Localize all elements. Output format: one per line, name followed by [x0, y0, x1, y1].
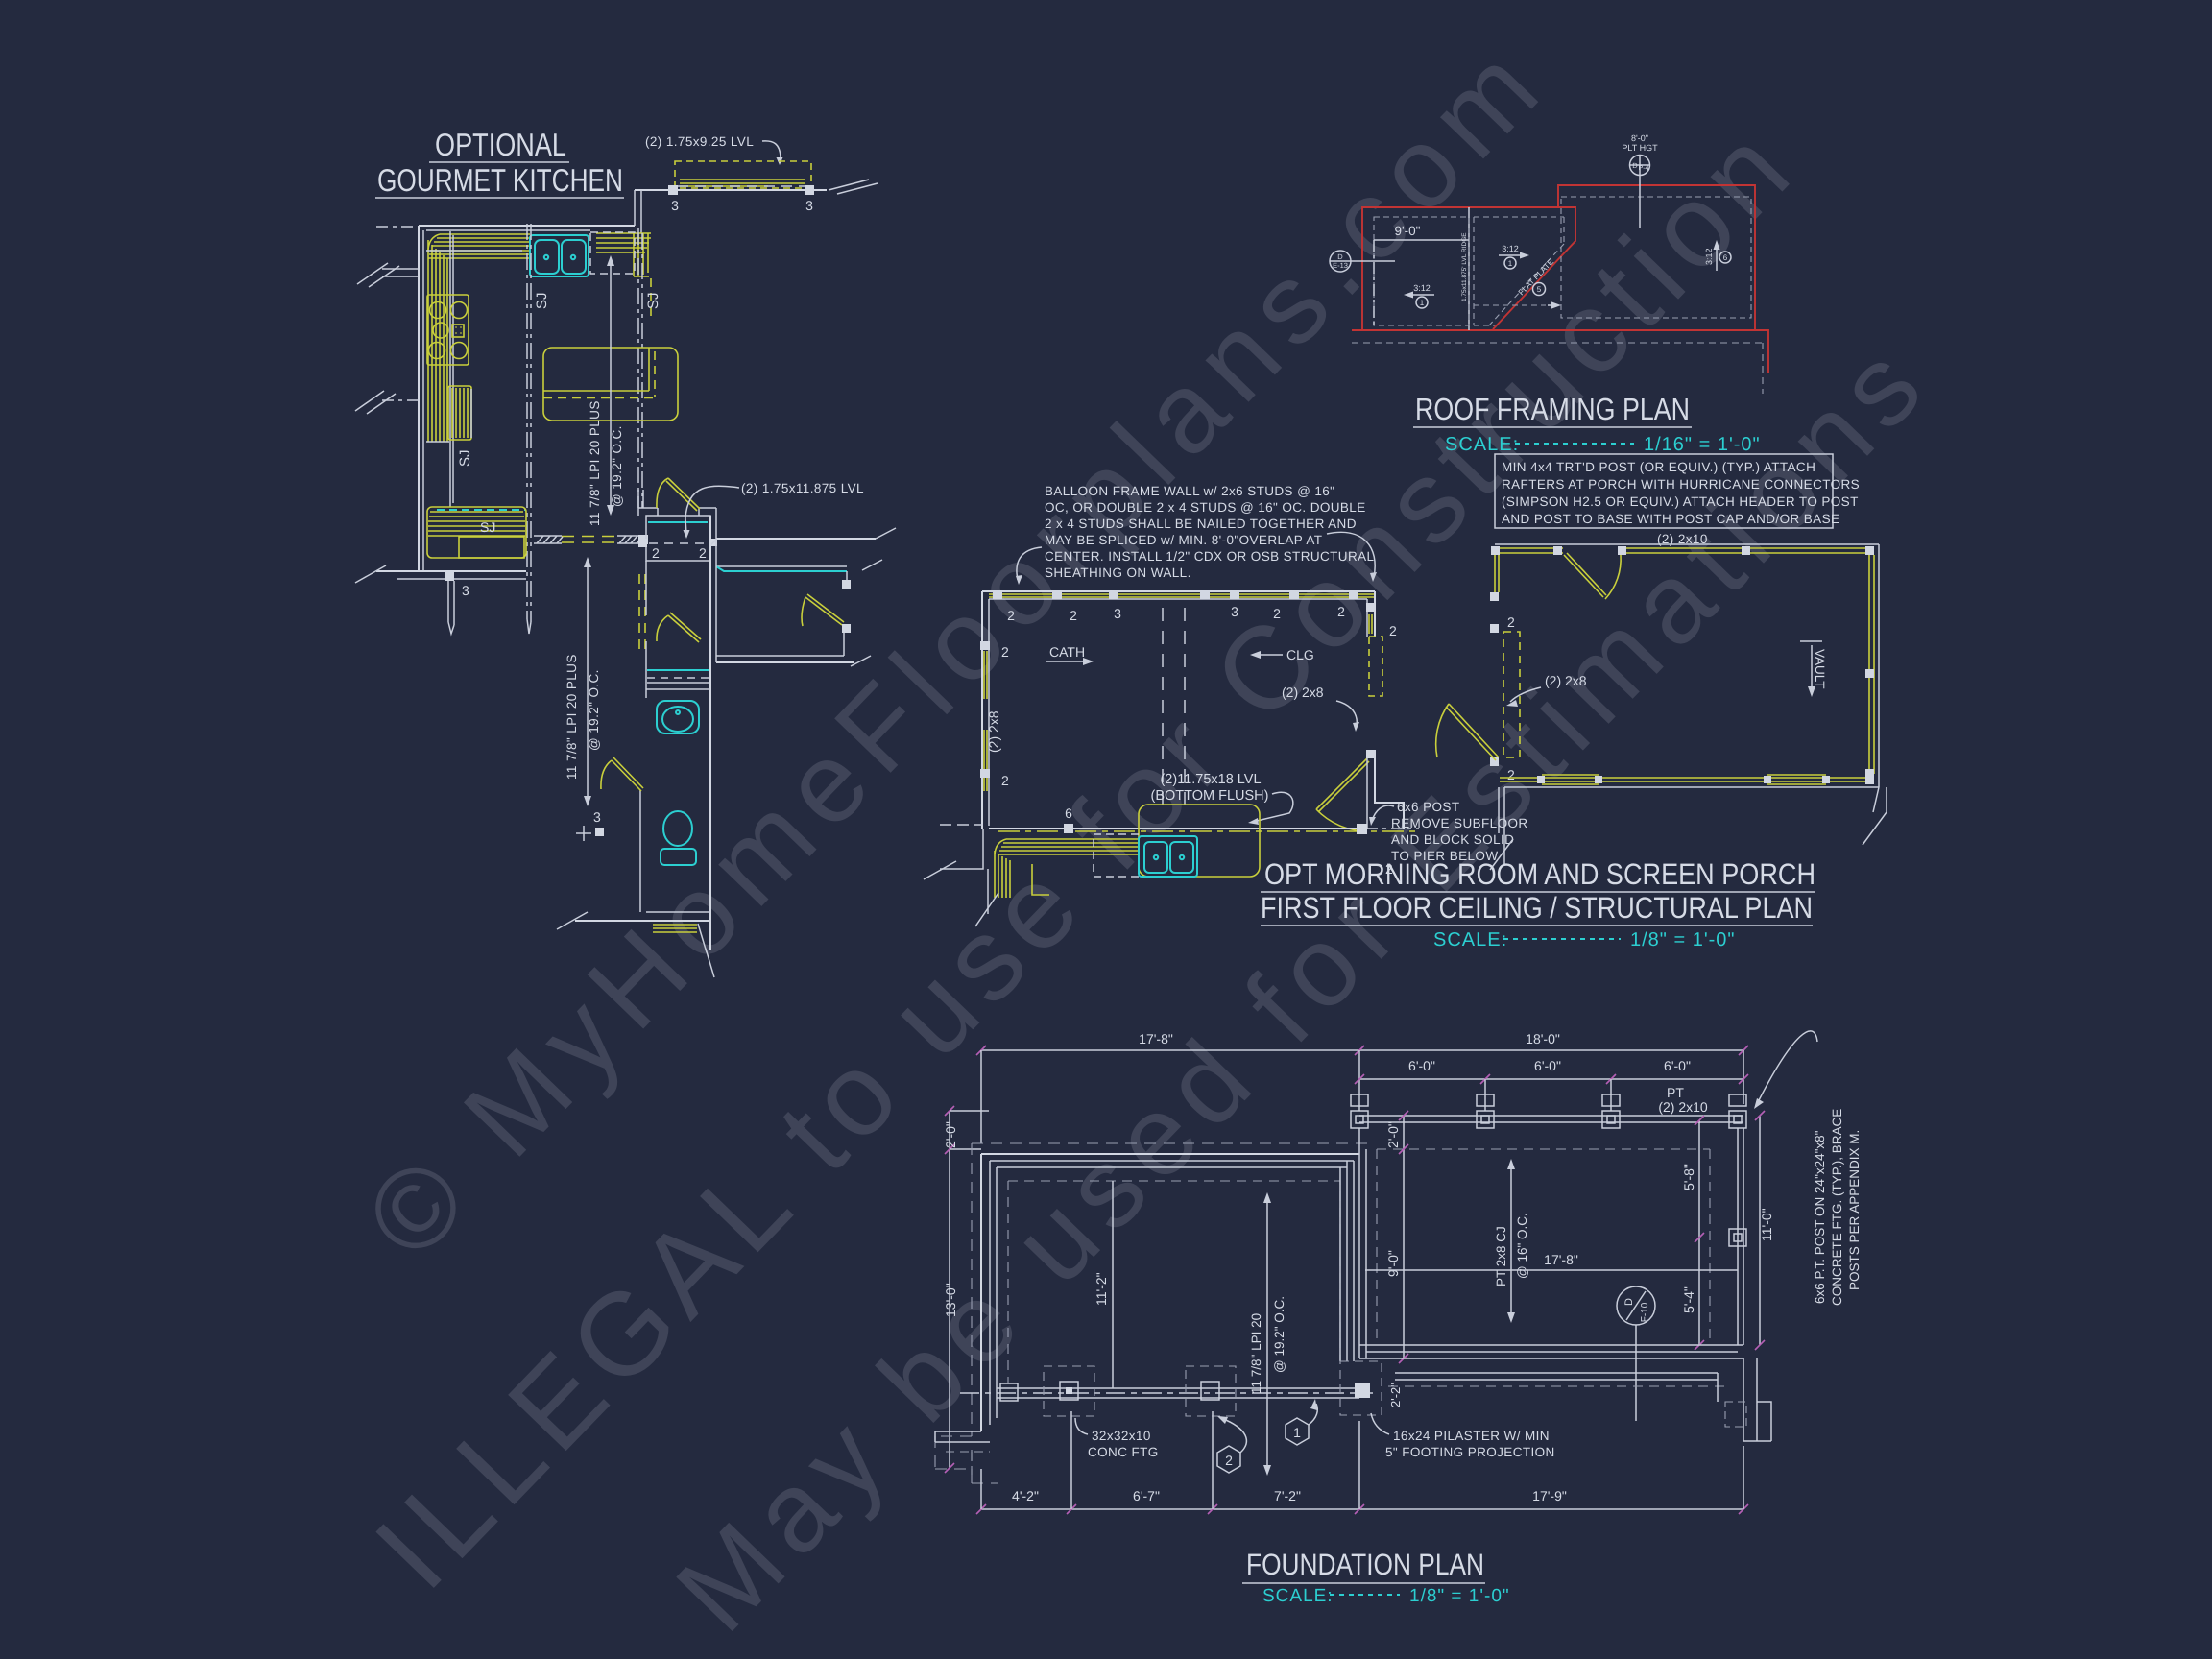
svg-text:17'-9": 17'-9"	[1532, 1488, 1567, 1503]
svg-text:PT 2x8 CJ: PT 2x8 CJ	[1494, 1226, 1508, 1286]
svg-text:6'-0": 6'-0"	[1664, 1058, 1691, 1073]
svg-text:POSTS PER APPENDIX M.: POSTS PER APPENDIX M.	[1847, 1130, 1862, 1290]
svg-text:6'-0": 6'-0"	[1408, 1058, 1435, 1073]
svg-text:5'-4": 5'-4"	[1681, 1286, 1696, 1313]
svg-text:17'-8": 17'-8"	[1544, 1252, 1578, 1267]
svg-text:9'-0": 9'-0"	[1385, 1250, 1401, 1277]
svg-text:2: 2	[1225, 1453, 1233, 1468]
svg-text:CONCRETE FTG. (TYP.), BRACE: CONCRETE FTG. (TYP.), BRACE	[1830, 1109, 1844, 1306]
svg-text:11'-2": 11'-2"	[1094, 1272, 1109, 1306]
svg-text:F-10: F-10	[1640, 1302, 1650, 1322]
svg-text:SCALE:: SCALE:	[1262, 1586, 1334, 1606]
svg-text:13'-0": 13'-0"	[943, 1283, 958, 1317]
svg-text:6'-7": 6'-7"	[1133, 1488, 1160, 1503]
svg-text:18'-0": 18'-0"	[1526, 1031, 1560, 1046]
svg-text:17'-8": 17'-8"	[1139, 1031, 1173, 1046]
svg-text:6x6 P.T. POST ON 24"x24"x8": 6x6 P.T. POST ON 24"x24"x8"	[1813, 1130, 1827, 1304]
svg-text:6'-0": 6'-0"	[1534, 1058, 1561, 1073]
svg-text:5" FOOTING PROJECTION: 5" FOOTING PROJECTION	[1385, 1445, 1555, 1459]
svg-text:7'-2": 7'-2"	[1274, 1488, 1301, 1503]
svg-text:CONC FTG: CONC FTG	[1088, 1445, 1159, 1459]
svg-text:11'-0": 11'-0"	[1759, 1208, 1774, 1241]
svg-text:5'-8": 5'-8"	[1681, 1164, 1696, 1190]
svg-text:4'-2": 4'-2"	[1012, 1488, 1039, 1503]
svg-text:2'-0": 2'-0"	[943, 1121, 958, 1148]
svg-text:FOUNDATION PLAN: FOUNDATION PLAN	[1246, 1548, 1484, 1581]
svg-text:@ 16" O.C.: @ 16" O.C.	[1515, 1213, 1529, 1279]
svg-text:1: 1	[1293, 1425, 1301, 1440]
svg-text:PT: PT	[1667, 1085, 1684, 1100]
svg-text:@ 19.2" O.C.: @ 19.2" O.C.	[1272, 1296, 1286, 1373]
svg-text:D: D	[1623, 1298, 1635, 1306]
svg-text:(2) 2x10: (2) 2x10	[1658, 1099, 1708, 1115]
svg-text:16x24 PILASTER W/ MIN: 16x24 PILASTER W/ MIN	[1393, 1429, 1550, 1443]
svg-text:2'-0": 2'-0"	[1385, 1121, 1401, 1148]
svg-text:11 7/8" LPI 20: 11 7/8" LPI 20	[1249, 1313, 1263, 1394]
svg-text:32x32x10: 32x32x10	[1092, 1429, 1151, 1443]
svg-text:1/8" = 1'-0": 1/8" = 1'-0"	[1409, 1586, 1510, 1606]
